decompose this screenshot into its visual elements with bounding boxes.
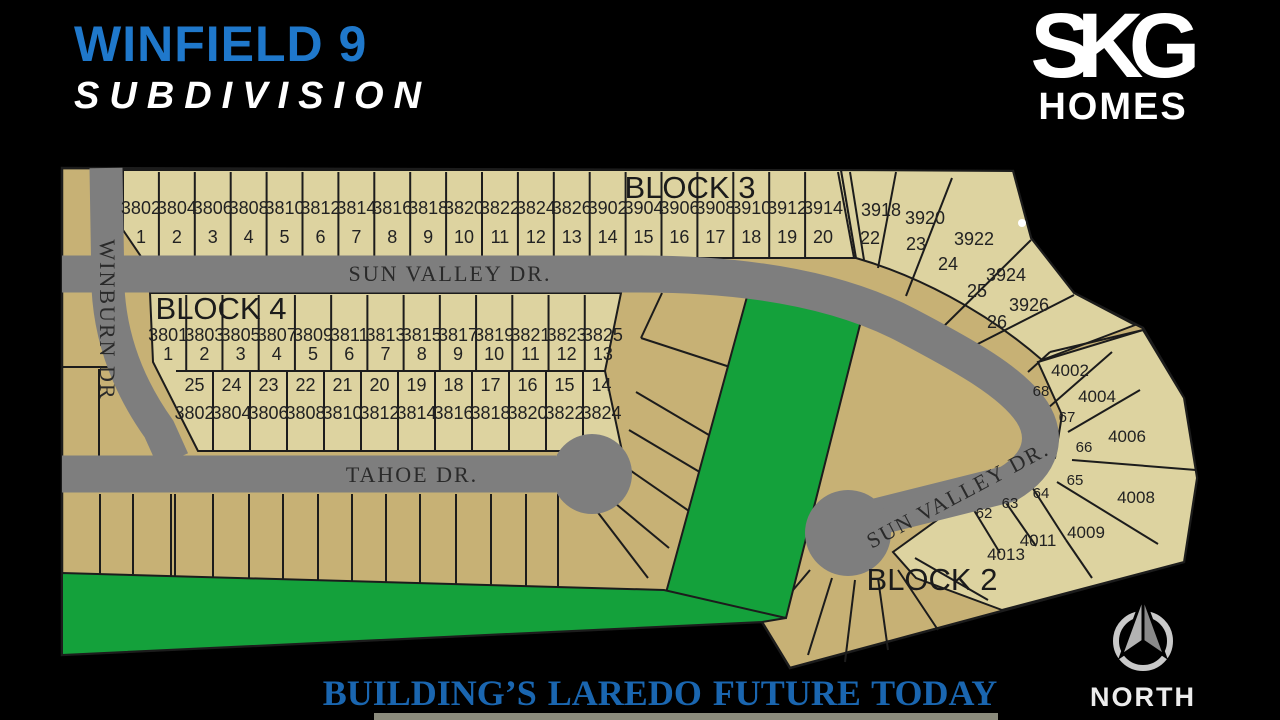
lot-number-label: 9 (453, 344, 463, 364)
lot-address-label: 3826 (552, 198, 592, 218)
lot-number-label: 18 (741, 227, 761, 247)
lot-number-label: 18 (443, 375, 463, 395)
lot-number-label: 9 (423, 227, 433, 247)
lot-address-label: 3808 (229, 198, 269, 218)
lot-number-label: 7 (351, 227, 361, 247)
lot-number-label: 22 (860, 228, 880, 248)
street-label-winburn: WINBURN DR (95, 239, 120, 400)
lot-number-label: 26 (987, 312, 1007, 332)
lot-number-label: 6 (344, 344, 354, 364)
lot-address-label: 3820 (444, 198, 484, 218)
lot-number-label: 19 (777, 227, 797, 247)
lot-address-label: 3820 (507, 403, 547, 423)
lot-address-label: 3824 (516, 198, 556, 218)
lot-number-label: 10 (454, 227, 474, 247)
title-block: WINFIELD 9 SUBDIVISION (74, 18, 431, 116)
lot-address-label: 3918 (861, 200, 901, 220)
logo-monogram: SKG (1018, 0, 1198, 92)
lot-address-label: 3808 (285, 403, 325, 423)
lot-address-label: 4011 (1020, 531, 1057, 550)
lot-number-label: 17 (705, 227, 725, 247)
lot-number-label: 3 (236, 344, 246, 364)
skg-homes-logo: SKG HOMES (1018, 0, 1208, 129)
lot-address-label: 3810 (265, 198, 305, 218)
lot-address-label: 4006 (1108, 427, 1146, 446)
lot-number-label: 64 (1033, 485, 1050, 502)
lot-address-label: 3906 (659, 198, 699, 218)
lot-address-label: 4008 (1117, 488, 1155, 507)
lot-number-label: 2 (172, 227, 182, 247)
lot-address-label: 3818 (470, 403, 510, 423)
logo-wordmark: HOMES (1018, 86, 1208, 129)
lot-address-label: 3816 (433, 403, 473, 423)
lot-address-label: 3823 (547, 325, 587, 345)
page-title: WINFIELD 9 (74, 18, 431, 71)
street-label-sun-valley: SUN VALLEY DR. (348, 261, 551, 286)
lot-address-label: 3912 (767, 198, 807, 218)
lot-number-label: 20 (369, 375, 389, 395)
lot-number-label: 65 (1067, 472, 1084, 489)
lot-address-label: 3814 (396, 403, 436, 423)
lot-number-label: 15 (554, 375, 574, 395)
map-pin-dot (1018, 219, 1026, 227)
lot-number-label: 13 (562, 227, 582, 247)
lot-number-label: 20 (813, 227, 833, 247)
lot-address-label: 3809 (293, 325, 333, 345)
lot-number-label: 66 (1076, 439, 1093, 456)
lot-address-label: 3801 (148, 325, 188, 345)
lot-address-label: 3810 (322, 403, 362, 423)
north-arrow-icon (1121, 596, 1143, 656)
lot-number-label: 1 (163, 344, 173, 364)
lot-address-label: 3806 (248, 403, 288, 423)
lot-number-label: 7 (380, 344, 390, 364)
lot-address-label: 3924 (986, 265, 1026, 285)
compass-label: NORTH (1090, 682, 1196, 712)
lot-address-label: 3812 (300, 198, 340, 218)
lot-number-label: 1 (136, 227, 146, 247)
lot-address-label: 3804 (157, 198, 197, 218)
lot-address-label: 3806 (193, 198, 233, 218)
lot-number-label: 11 (521, 344, 540, 364)
slide: SUN VALLEY DR. TAHOE DR. WINBURN DR SUN … (0, 0, 1280, 720)
lot-address-label: 3817 (438, 325, 478, 345)
lot-address-label: 3812 (359, 403, 399, 423)
north-arrow-icon (1143, 596, 1165, 656)
lot-number-label: 19 (406, 375, 426, 395)
tagline: BUILDING’S LAREDO FUTURE TODAY (320, 672, 1000, 714)
lot-number-label: 23 (906, 234, 926, 254)
street-label-tahoe: TAHOE DR. (346, 462, 478, 487)
lot-number-label: 16 (517, 375, 537, 395)
lot-number-label: 14 (598, 227, 618, 247)
lot-address-label: 3802 (121, 198, 161, 218)
lot-address-label: 4009 (1067, 523, 1105, 542)
lot-number-label: 15 (634, 227, 654, 247)
lot-number-label: 25 (184, 375, 204, 395)
lot-address-label: 4002 (1051, 361, 1089, 380)
lot-address-label: 3811 (330, 325, 369, 345)
lot-address-label: 3803 (184, 325, 224, 345)
lot-address-label: 3824 (581, 403, 621, 423)
lot-number-label: 16 (669, 227, 689, 247)
lot-address-label: 3802 (174, 403, 214, 423)
lot-number-label: 63 (1002, 495, 1019, 512)
lot-number-label: 11 (491, 227, 510, 247)
lot-number-label: 21 (332, 375, 352, 395)
lot-number-label: 5 (280, 227, 290, 247)
lot-number-label: 24 (938, 254, 958, 274)
lot-number-label: 23 (258, 375, 278, 395)
lot-number-label: 12 (526, 227, 546, 247)
lot-number-label: 24 (221, 375, 241, 395)
lot-number-label: 14 (591, 375, 611, 395)
lot-address-label: 3908 (695, 198, 735, 218)
lot-address-label: 3821 (510, 325, 550, 345)
lot-number-label: 22 (295, 375, 315, 395)
lot-address-label: 3807 (257, 325, 297, 345)
bottom-bar (374, 713, 998, 720)
block2-label: BLOCK 2 (867, 562, 998, 597)
lot-number-label: 4 (272, 344, 282, 364)
lot-address-label: 3805 (221, 325, 261, 345)
lot-number-label: 12 (557, 344, 577, 364)
lot-address-label: 3816 (372, 198, 412, 218)
lot-number-label: 62 (976, 505, 993, 522)
lot-number-label: 25 (967, 281, 987, 301)
lot-number-label: 13 (593, 344, 613, 364)
lot-address-label: 3822 (544, 403, 584, 423)
lot-address-label: 3813 (365, 325, 405, 345)
lot-number-label: 2 (199, 344, 209, 364)
lot-number-label: 17 (480, 375, 500, 395)
block4-label: BLOCK 4 (156, 291, 287, 326)
page-subtitle: SUBDIVISION (74, 77, 431, 117)
lot-address-label: 3902 (588, 198, 628, 218)
lot-address-label: 3914 (803, 198, 843, 218)
tahoe-cul-de-sac (552, 434, 632, 514)
lot-number-label: 3 (208, 227, 218, 247)
lot-address-label: 3926 (1009, 295, 1049, 315)
lot-number-label: 4 (244, 227, 254, 247)
lot-number-label: 5 (308, 344, 318, 364)
lot-number-label: 6 (315, 227, 325, 247)
lot-address-label: 3822 (480, 198, 520, 218)
lot-address-label: 3825 (583, 325, 623, 345)
lot-address-label: 3910 (731, 198, 771, 218)
lot-address-label: 3922 (954, 229, 994, 249)
lot-number-label: 10 (484, 344, 504, 364)
lot-address-label: 3818 (408, 198, 448, 218)
lot-address-label: 3815 (402, 325, 442, 345)
lot-address-label: 3904 (624, 198, 664, 218)
lot-number-label: 68 (1033, 383, 1050, 400)
lot-number-label: 67 (1059, 409, 1076, 426)
lot-address-label: 3814 (336, 198, 376, 218)
lot-number-label: 8 (417, 344, 427, 364)
lot-number-label: 8 (387, 227, 397, 247)
lot-address-label: 4013 (987, 545, 1025, 564)
lot-address-label: 3819 (474, 325, 514, 345)
lot-address-label: 3920 (905, 208, 945, 228)
lot-address-label: 3804 (211, 403, 251, 423)
lot-address-label: 4004 (1078, 387, 1116, 406)
north-compass: NORTH (1090, 596, 1196, 712)
